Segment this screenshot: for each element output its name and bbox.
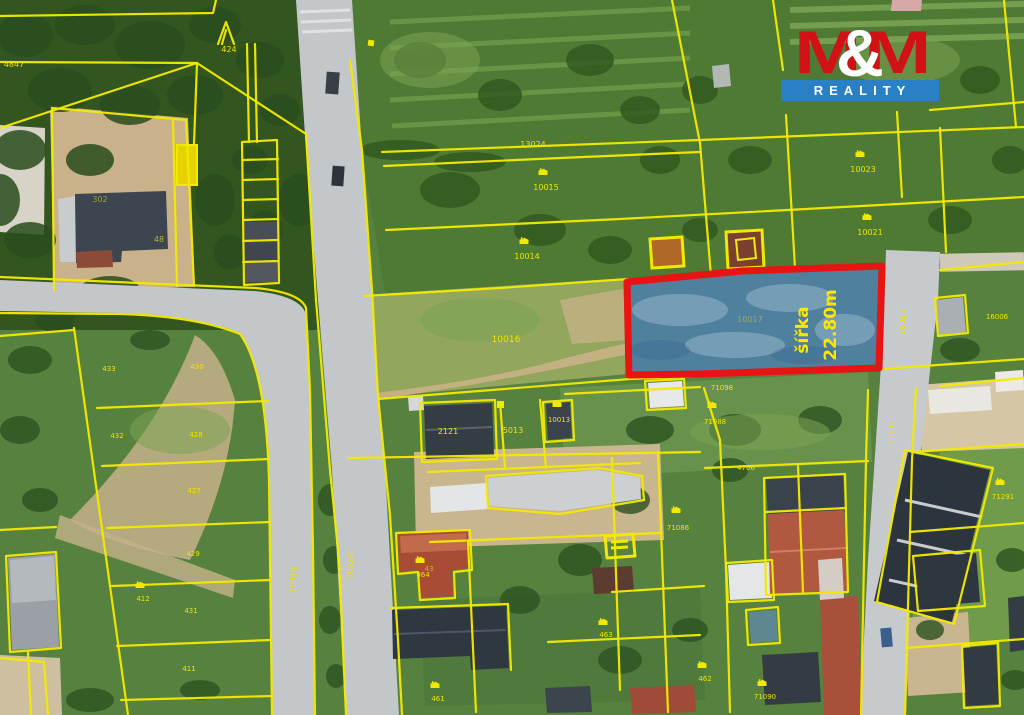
parcel-label: 10022: [898, 309, 907, 334]
vehicle-blue-car: [880, 628, 893, 648]
parcel-label: 2121: [438, 427, 458, 436]
parcel-label: 71098: [711, 384, 733, 392]
parcel-label: 431: [184, 607, 197, 615]
logo-ampersand: &: [836, 26, 884, 80]
width-label-value: 22.80m: [821, 289, 841, 361]
highlight-parcel: 10017 šířka 22.80m: [627, 266, 882, 375]
parcel-label: 10020: [345, 553, 356, 579]
cadastral-aerial-map: 10017 šířka 22.80m 484742413024100151001…: [0, 0, 1024, 715]
parcel-label: 71088: [704, 418, 726, 426]
parcel-label: 464: [416, 571, 430, 579]
parcel-label: 5013: [503, 426, 523, 435]
parcel-label: 424: [221, 45, 236, 54]
parcel-label: 411: [182, 665, 195, 673]
parcel-label: 462: [698, 675, 711, 683]
vehicle: [331, 166, 344, 187]
parcel-label: 48: [154, 235, 164, 244]
parcel-label: 427: [187, 487, 200, 495]
parcel-label: 432: [110, 432, 123, 440]
parcel-label: 4847: [4, 60, 24, 69]
parcel-label: 10023: [850, 165, 875, 174]
parcel-label: 10016: [492, 335, 521, 345]
parcel-label: 10019: [288, 567, 298, 593]
parcel-label: 428: [189, 431, 202, 439]
parcel-label: 13024: [520, 140, 545, 149]
parcel-label: 10015: [533, 183, 558, 192]
width-label-sirka: šířka: [793, 306, 813, 353]
parcel-label: 10018: [888, 423, 896, 445]
parcel-label: 433: [102, 365, 115, 373]
parcel-label: 10014: [514, 252, 539, 261]
parcel-label: 71090: [754, 693, 776, 701]
parcel-label: 4706: [737, 464, 755, 472]
parcel-label: 302: [92, 195, 107, 204]
parcel-label: 412: [136, 595, 149, 603]
parcel-label: 71291: [992, 493, 1014, 501]
parcel-label: 461: [431, 695, 444, 703]
highlight-parcel-number: 10017: [737, 315, 762, 324]
vehicle: [325, 72, 340, 95]
parcel-label: 10013: [548, 416, 570, 424]
parcel-label: 16006: [986, 313, 1009, 321]
parcel-label: 430: [190, 363, 203, 371]
mm-reality-logo: M & M REALITY: [779, 26, 941, 101]
mm-reality-logo-mm: M & M: [802, 26, 918, 80]
aerial-cadastral-map-screenshot: 10017 šířka 22.80m 484742413024100151001…: [0, 0, 1024, 715]
parcel-label: 71086: [667, 524, 690, 532]
parcel-label: 429: [186, 550, 199, 558]
parcel-label: 463: [599, 631, 612, 639]
parcel-label: 10021: [857, 228, 882, 237]
